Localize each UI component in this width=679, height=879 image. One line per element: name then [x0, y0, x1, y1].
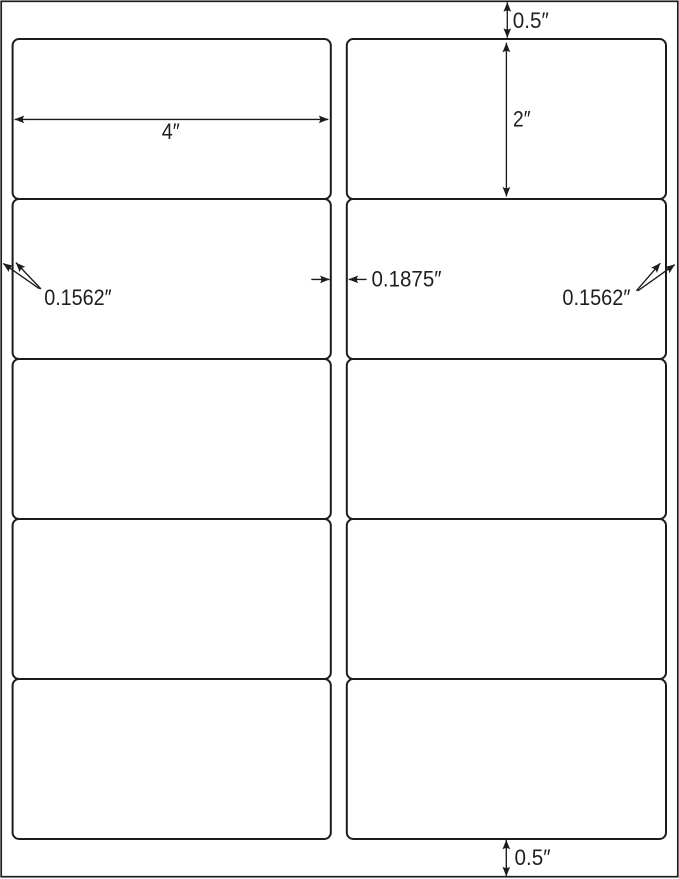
- svg-text:0.5″: 0.5″: [515, 845, 551, 870]
- svg-text:0.1875″: 0.1875″: [372, 266, 442, 291]
- svg-text:0.1562″: 0.1562″: [44, 285, 112, 310]
- svg-text:0.5″: 0.5″: [513, 8, 549, 33]
- svg-text:0.1562″: 0.1562″: [562, 285, 630, 310]
- svg-text:4″: 4″: [162, 119, 180, 144]
- svg-text:2″: 2″: [513, 107, 531, 132]
